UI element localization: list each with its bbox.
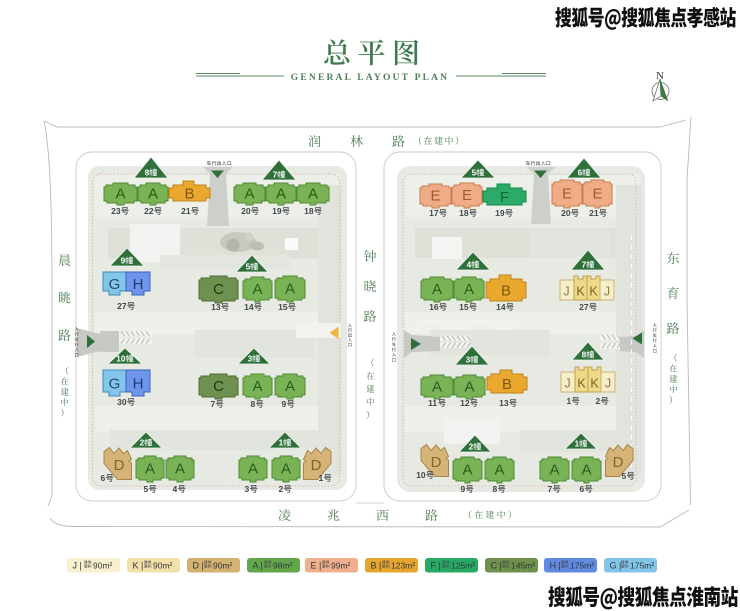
svg-text:A: A bbox=[244, 185, 254, 202]
svg-text:A: A bbox=[115, 185, 125, 202]
svg-text:98m²: 98m² bbox=[273, 561, 293, 571]
svg-text:A: A bbox=[464, 281, 474, 298]
svg-text:A: A bbox=[276, 185, 286, 202]
svg-text:B: B bbox=[184, 185, 194, 202]
svg-text:175m²: 175m² bbox=[630, 561, 654, 571]
svg-text:22: 22 bbox=[144, 206, 154, 216]
svg-text:20: 20 bbox=[561, 208, 571, 218]
svg-text:H: H bbox=[133, 276, 144, 293]
svg-text:C |: C | bbox=[491, 561, 502, 571]
svg-text:17: 17 bbox=[429, 208, 439, 218]
svg-text:19: 19 bbox=[495, 208, 505, 218]
svg-text:7: 7 bbox=[211, 399, 216, 409]
svg-text:8: 8 bbox=[582, 351, 587, 360]
svg-text:K: K bbox=[577, 377, 586, 391]
svg-text:A: A bbox=[581, 461, 591, 478]
svg-text:K: K bbox=[576, 285, 585, 299]
svg-text:11: 11 bbox=[428, 398, 437, 408]
svg-text:6: 6 bbox=[580, 484, 585, 494]
svg-text:A: A bbox=[432, 378, 442, 395]
svg-text:G: G bbox=[109, 375, 121, 392]
svg-text:G: G bbox=[109, 276, 121, 293]
svg-text:A: A bbox=[148, 185, 158, 202]
svg-text:J: J bbox=[605, 377, 611, 391]
svg-text:175m²: 175m² bbox=[570, 561, 594, 571]
svg-text:21: 21 bbox=[181, 206, 191, 216]
svg-text:D: D bbox=[311, 457, 322, 474]
svg-text:8: 8 bbox=[251, 399, 256, 409]
svg-text:3: 3 bbox=[248, 355, 253, 364]
svg-text:C: C bbox=[213, 281, 224, 298]
svg-text:8: 8 bbox=[145, 169, 150, 178]
svg-text:5: 5 bbox=[144, 484, 149, 494]
svg-text:J: J bbox=[604, 285, 610, 299]
svg-text:123m²: 123m² bbox=[391, 561, 415, 571]
svg-text:A: A bbox=[252, 378, 262, 395]
svg-text:A: A bbox=[252, 281, 262, 298]
svg-text:15: 15 bbox=[278, 302, 288, 312]
svg-text:12: 12 bbox=[460, 398, 470, 408]
svg-text:21: 21 bbox=[589, 208, 599, 218]
svg-text:27: 27 bbox=[117, 301, 127, 311]
svg-text:8: 8 bbox=[493, 484, 498, 494]
svg-text:6: 6 bbox=[578, 169, 583, 178]
svg-text:5: 5 bbox=[246, 263, 251, 272]
svg-text:90m²: 90m² bbox=[93, 561, 113, 571]
svg-text:6: 6 bbox=[101, 473, 106, 483]
svg-text:1: 1 bbox=[279, 439, 284, 448]
svg-text:J: J bbox=[564, 377, 570, 391]
svg-text:K: K bbox=[589, 285, 598, 299]
svg-text:A: A bbox=[308, 185, 318, 202]
svg-text:A: A bbox=[285, 280, 295, 297]
svg-text:A: A bbox=[432, 281, 442, 298]
svg-text:G |: G | bbox=[610, 561, 622, 571]
svg-text:A: A bbox=[248, 460, 258, 477]
svg-text:D: D bbox=[431, 454, 442, 471]
svg-text:H |: H | bbox=[550, 561, 561, 571]
svg-text:27: 27 bbox=[579, 302, 589, 312]
svg-text:E: E bbox=[562, 185, 572, 202]
svg-text:GENERAL LAYOUT PLAN: GENERAL LAYOUT PLAN bbox=[291, 73, 449, 83]
svg-text:23: 23 bbox=[111, 206, 121, 216]
svg-text:F: F bbox=[500, 189, 509, 206]
svg-text:90m²: 90m² bbox=[213, 561, 233, 571]
svg-text:16: 16 bbox=[429, 302, 439, 312]
svg-text:E: E bbox=[592, 185, 602, 202]
svg-text:99m²: 99m² bbox=[331, 561, 351, 571]
svg-text:J |: J | bbox=[73, 561, 82, 571]
svg-text:B: B bbox=[501, 282, 511, 299]
svg-text:H: H bbox=[133, 375, 144, 392]
svg-text:5: 5 bbox=[472, 169, 477, 178]
svg-text:4: 4 bbox=[467, 261, 472, 270]
svg-text:14: 14 bbox=[244, 302, 254, 312]
svg-text:E: E bbox=[430, 187, 440, 204]
svg-text:B |: B | bbox=[371, 561, 382, 571]
svg-text:F |: F | bbox=[431, 561, 441, 571]
svg-text:3: 3 bbox=[245, 484, 250, 494]
svg-text:A: A bbox=[549, 461, 559, 478]
svg-text:13: 13 bbox=[211, 302, 221, 312]
svg-text:90m²: 90m² bbox=[153, 561, 173, 571]
svg-text:A: A bbox=[285, 378, 295, 395]
svg-text:A: A bbox=[145, 460, 155, 477]
svg-text:K |: K | bbox=[133, 561, 144, 571]
svg-text:30: 30 bbox=[117, 397, 127, 407]
svg-text:9: 9 bbox=[461, 484, 466, 494]
svg-text:A: A bbox=[464, 378, 474, 395]
svg-text:K: K bbox=[590, 377, 599, 391]
svg-text:1: 1 bbox=[575, 440, 580, 449]
svg-text:9: 9 bbox=[121, 257, 126, 266]
svg-text:J: J bbox=[563, 285, 569, 299]
svg-text:C: C bbox=[213, 378, 224, 395]
svg-text:2: 2 bbox=[596, 396, 601, 406]
svg-text:145m²: 145m² bbox=[511, 561, 535, 571]
svg-text:7: 7 bbox=[548, 484, 553, 494]
svg-text:19: 19 bbox=[272, 206, 282, 216]
svg-text:A: A bbox=[281, 460, 291, 477]
svg-text:125m²: 125m² bbox=[451, 561, 475, 571]
svg-text:13: 13 bbox=[499, 398, 509, 408]
svg-text:7: 7 bbox=[582, 261, 587, 270]
svg-text:1: 1 bbox=[567, 396, 572, 406]
svg-text:E |: E | bbox=[311, 561, 322, 571]
svg-text:A: A bbox=[175, 460, 185, 477]
svg-text:A: A bbox=[462, 461, 472, 478]
svg-text:14: 14 bbox=[496, 302, 506, 312]
svg-text:2: 2 bbox=[140, 439, 145, 448]
svg-text:4: 4 bbox=[173, 484, 178, 494]
svg-text:D |: D | bbox=[193, 561, 204, 571]
svg-text:2: 2 bbox=[279, 484, 284, 494]
svg-text:A |: A | bbox=[253, 561, 263, 571]
svg-text:18: 18 bbox=[304, 206, 314, 216]
svg-text:D: D bbox=[114, 457, 125, 474]
svg-text:18: 18 bbox=[459, 208, 469, 218]
svg-text:A: A bbox=[494, 461, 504, 478]
svg-text:10: 10 bbox=[116, 355, 126, 364]
svg-text:5: 5 bbox=[622, 471, 627, 481]
svg-text:15: 15 bbox=[459, 302, 469, 312]
svg-text:E: E bbox=[462, 187, 472, 204]
svg-text:3: 3 bbox=[466, 356, 471, 365]
svg-text:9: 9 bbox=[282, 399, 287, 409]
svg-text:10: 10 bbox=[416, 470, 426, 480]
svg-text:2: 2 bbox=[469, 443, 474, 452]
svg-text:D: D bbox=[613, 454, 624, 471]
svg-text:B: B bbox=[502, 376, 512, 393]
svg-text:1: 1 bbox=[319, 473, 324, 483]
svg-text:7: 7 bbox=[273, 171, 278, 180]
svg-text:20: 20 bbox=[241, 206, 251, 216]
